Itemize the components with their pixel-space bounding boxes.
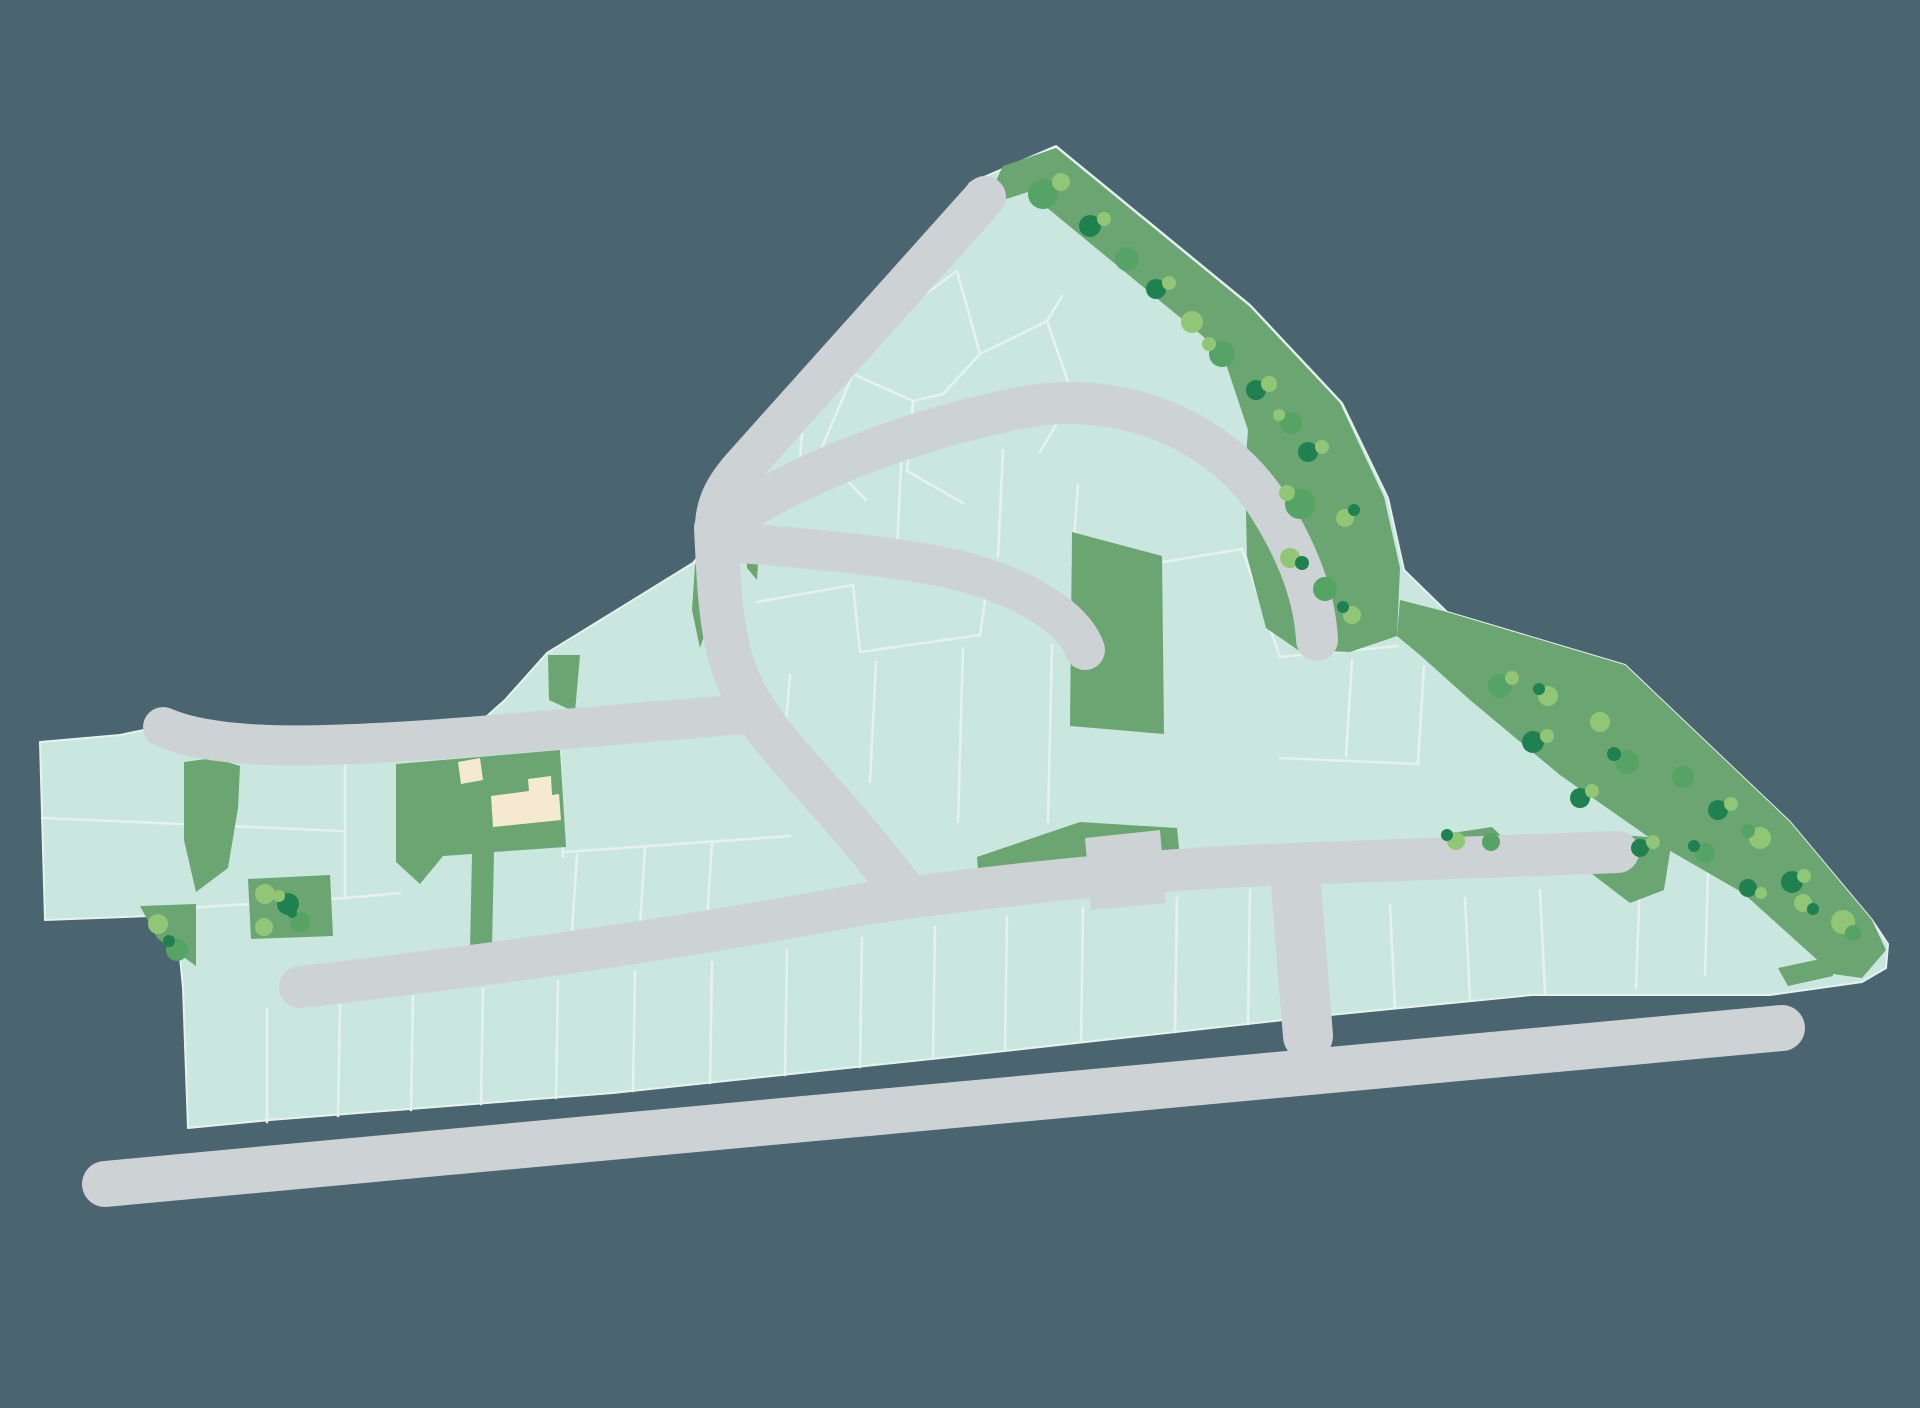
tree-glyph: [1162, 276, 1176, 290]
tree-glyph: [1261, 376, 1277, 392]
site-plan-map: [0, 0, 1920, 1408]
tree-glyph: [1273, 409, 1285, 421]
tree-glyph: [1313, 577, 1337, 601]
tree-glyph: [1279, 485, 1295, 501]
tree-glyph: [163, 935, 175, 947]
tree-glyph: [1441, 829, 1453, 841]
tree-glyph: [1505, 671, 1519, 685]
tree-glyph: [1097, 212, 1111, 226]
tree-glyph: [1115, 247, 1139, 271]
tree-glyph: [1845, 925, 1861, 941]
tree-glyph: [1688, 840, 1700, 852]
tree-glyph: [1202, 337, 1216, 351]
tree-glyph: [1585, 784, 1599, 798]
tree-glyph: [1672, 766, 1694, 788]
tree-glyph: [1348, 504, 1360, 516]
tree-glyph: [1181, 311, 1203, 333]
tree-glyph: [1797, 869, 1811, 883]
tree-glyph: [1739, 879, 1757, 897]
tree-glyph: [1540, 729, 1554, 743]
tree-glyph: [1607, 747, 1621, 761]
tree-glyph: [1590, 712, 1610, 732]
tree-glyph: [273, 890, 285, 902]
tree-glyph: [1533, 683, 1545, 695]
tree-glyph: [287, 908, 297, 918]
tree-glyph: [148, 914, 168, 934]
tree-glyph: [1646, 835, 1660, 849]
tree-glyph: [1315, 440, 1329, 454]
tree-glyph: [1482, 833, 1500, 851]
tree-glyph: [1337, 601, 1349, 613]
tree-glyph: [1724, 797, 1738, 811]
tree-glyph: [1741, 824, 1755, 838]
tree-glyph: [1295, 556, 1309, 570]
tree-glyph: [1298, 442, 1318, 462]
outbuilding: [458, 758, 483, 784]
site-plan-canvas: [0, 0, 1920, 1408]
tree-glyph: [1755, 887, 1767, 899]
tree-glyph: [1807, 903, 1819, 915]
tree-glyph: [255, 918, 273, 936]
connector-road: [1295, 872, 1308, 1036]
tree-glyph: [255, 884, 275, 904]
tree-glyph: [1052, 173, 1070, 191]
